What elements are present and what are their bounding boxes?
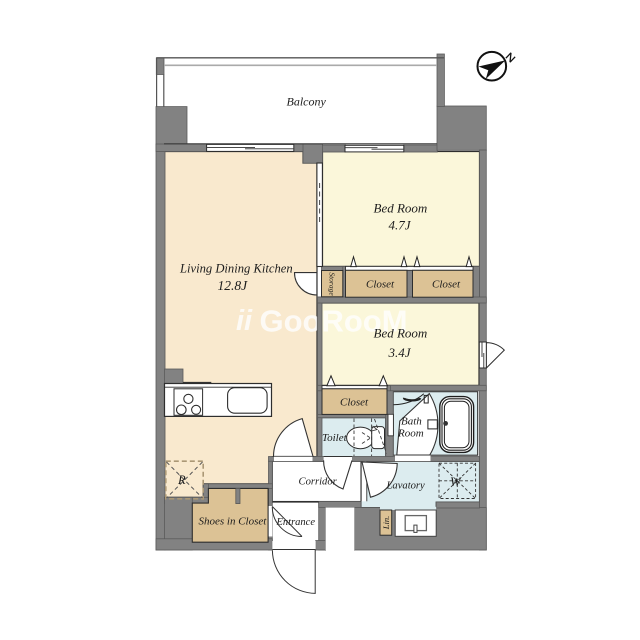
svg-text:Room: Room [397, 428, 424, 440]
svg-text:Shoes in Closet: Shoes in Closet [199, 516, 268, 528]
svg-text:Closet: Closet [340, 397, 369, 409]
svg-text:Balcony: Balcony [287, 95, 327, 109]
svg-text:Living Dining Kitchen: Living Dining Kitchen [179, 262, 293, 276]
svg-text:Storage: Storage [328, 272, 337, 296]
svg-text:4.7J: 4.7J [389, 218, 412, 233]
svg-text:W: W [450, 474, 462, 489]
svg-text:Bed Room: Bed Room [374, 326, 428, 341]
svg-text:Closet: Closet [366, 279, 395, 291]
svg-text:ii: ii [236, 305, 253, 337]
svg-text:12.8J: 12.8J [218, 278, 249, 293]
svg-text:Toilet: Toilet [322, 432, 348, 444]
svg-text:R: R [177, 473, 186, 487]
svg-text:3.4J: 3.4J [388, 345, 412, 360]
svg-text:Bath: Bath [401, 416, 422, 428]
svg-text:Lin.: Lin. [381, 516, 391, 530]
svg-text:Corridor: Corridor [299, 476, 338, 487]
svg-text:Lavatory: Lavatory [386, 480, 426, 491]
svg-text:Closet: Closet [432, 279, 461, 291]
svg-text:Bed Room: Bed Room [374, 201, 428, 216]
svg-text:Entrance: Entrance [276, 517, 316, 528]
